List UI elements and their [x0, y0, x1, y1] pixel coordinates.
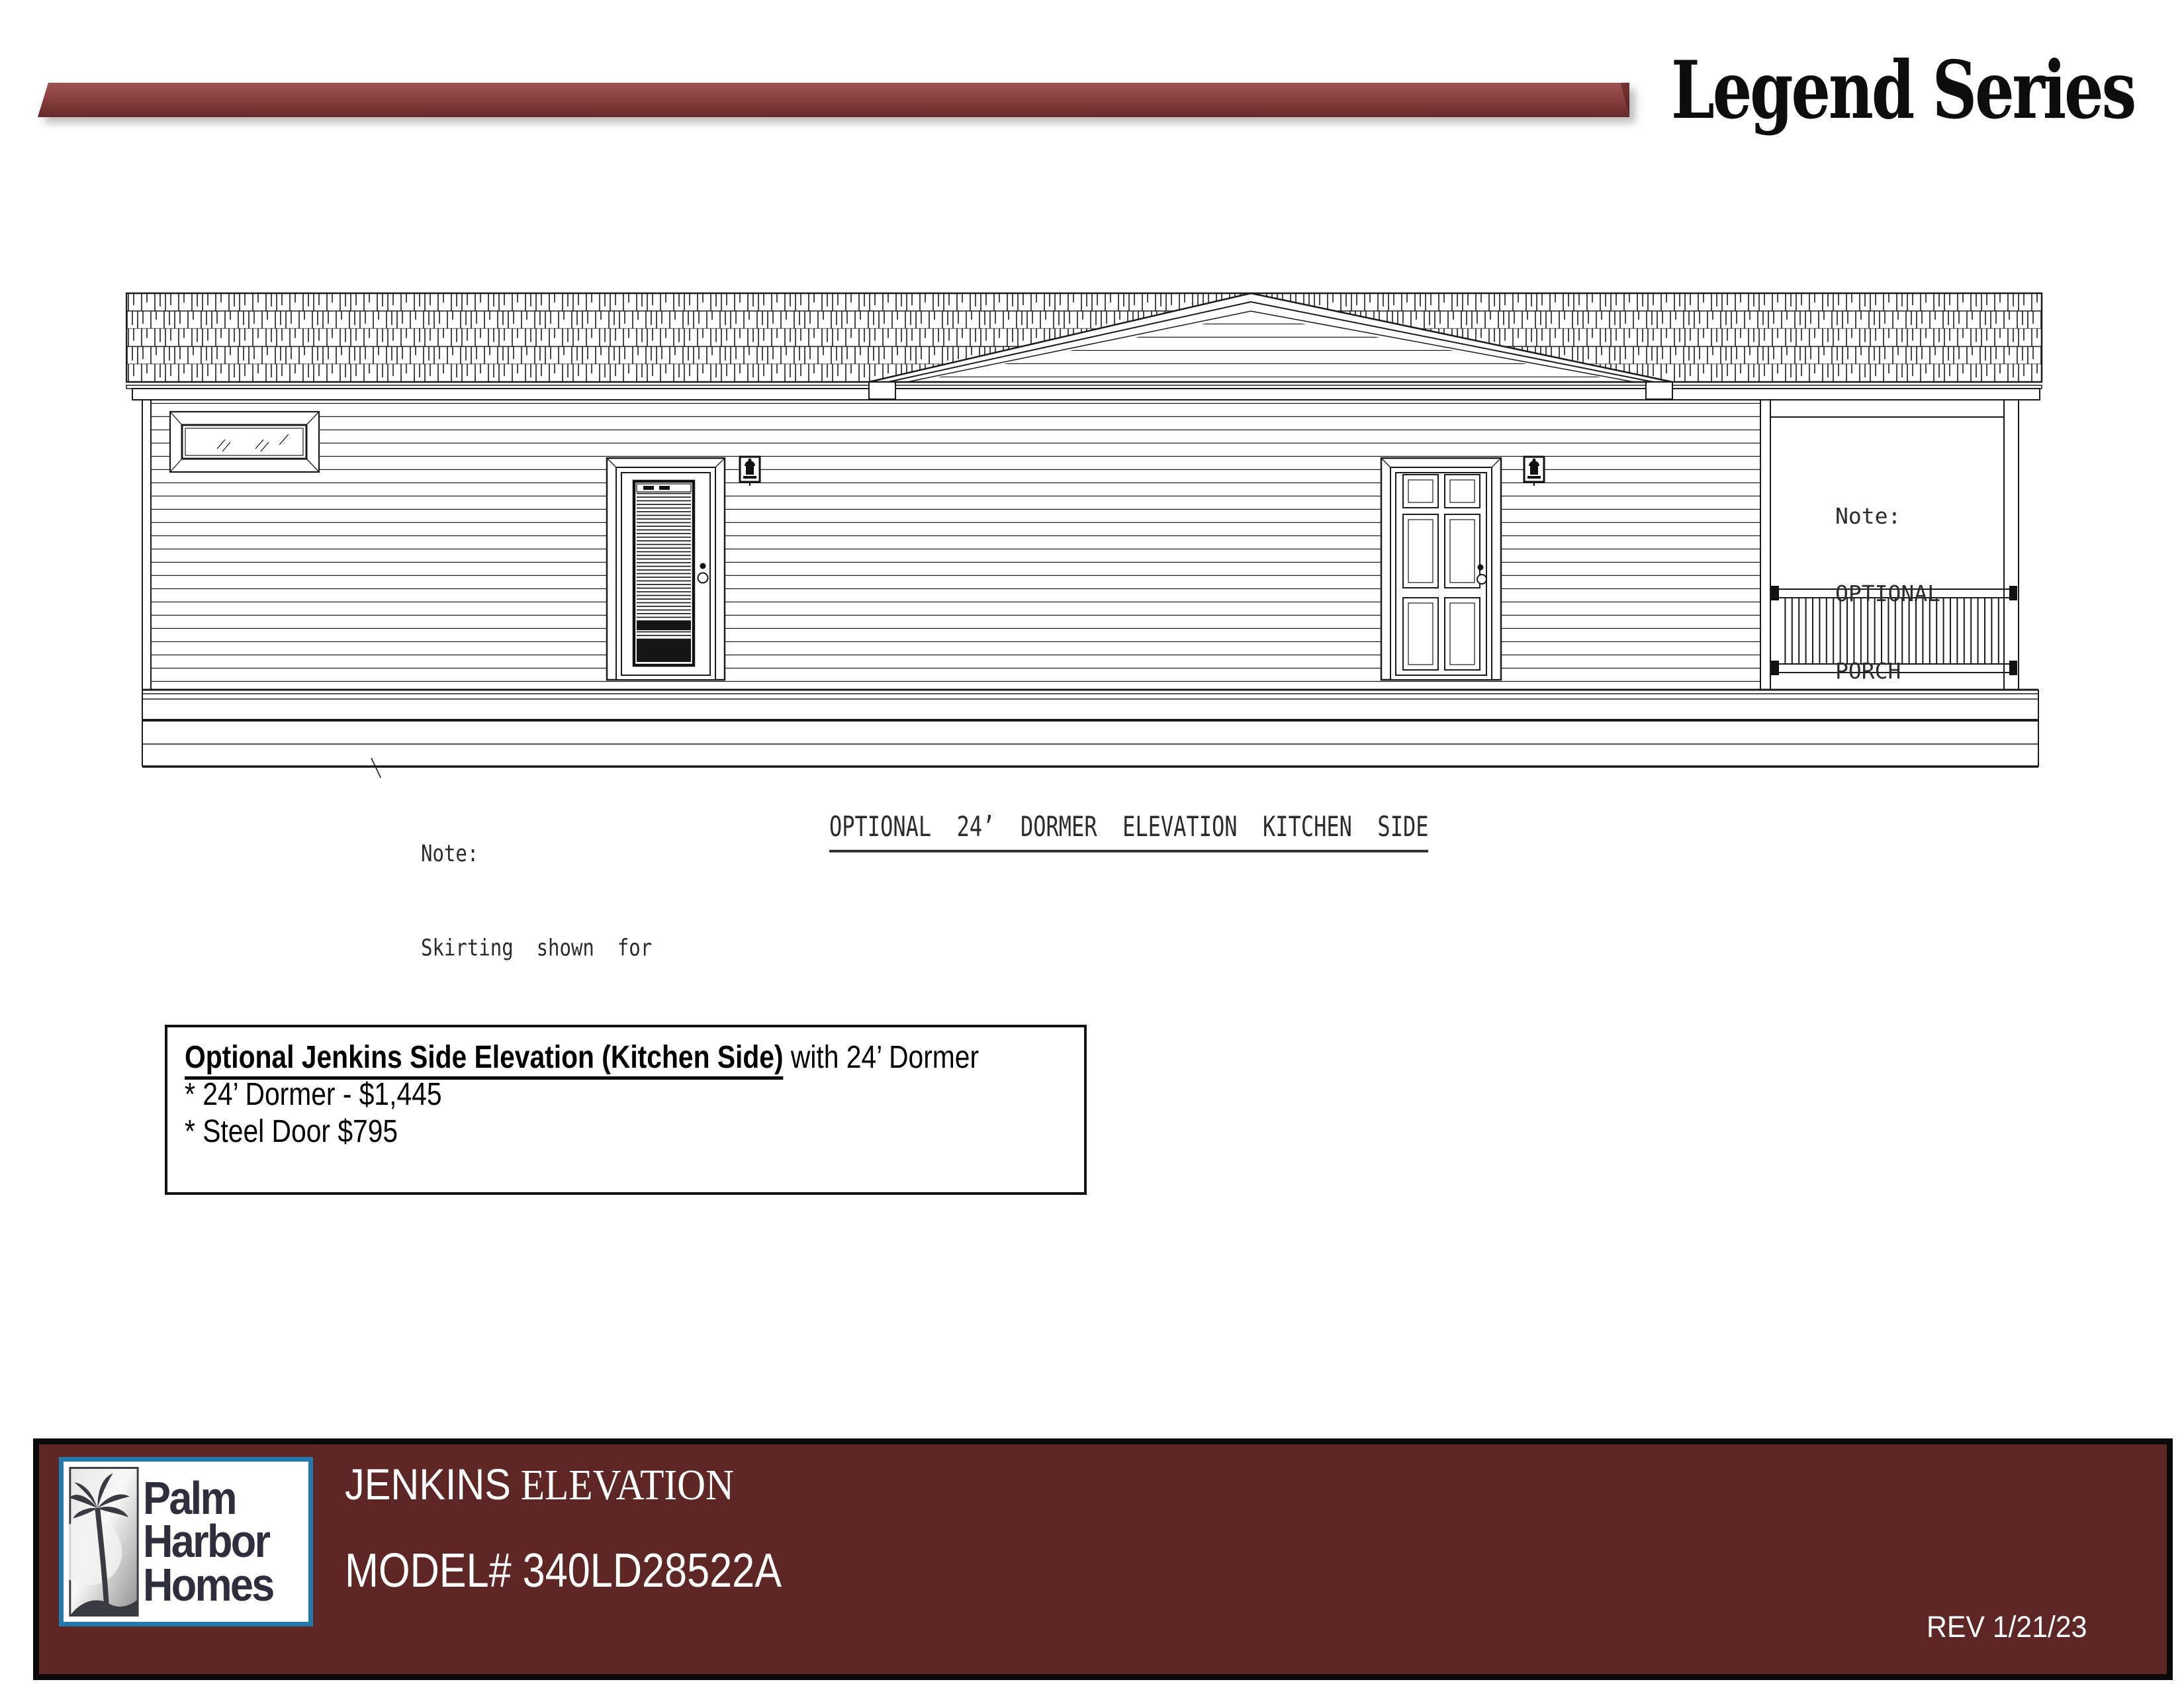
logo-word: Harbor: [143, 1520, 273, 1563]
price-item: * Steel Door $795: [185, 1113, 949, 1150]
skirting-note-line: Note:: [421, 837, 745, 869]
palm-tree-icon: [69, 1467, 139, 1617]
skirting-note-line: Skirting shown for: [421, 932, 745, 964]
porch-note-line: PORCH: [1835, 658, 1940, 684]
steel-door-with-blinds: [607, 458, 725, 680]
door-deadbolt: [698, 573, 708, 583]
logo-wordmark: Palm Harbor Homes: [143, 1477, 273, 1606]
six-panel-door: [1381, 458, 1501, 680]
wall-siding: [142, 400, 1770, 690]
elevation-title: JENKINS ELEVATION: [345, 1459, 734, 1511]
revision-date: REV 1/21/23: [1927, 1610, 2087, 1644]
porch-note-line: OPTIONAL: [1835, 581, 1940, 606]
price-box-title: Optional Jenkins Side Elevation (Kitchen…: [185, 1039, 949, 1076]
accent-bar-body: [38, 83, 1629, 117]
price-box-title-rest: with 24’ Dormer: [784, 1040, 979, 1075]
door-deadbolt: [1477, 575, 1486, 584]
price-item: * 24’ Dormer - $1,445: [185, 1076, 949, 1113]
porch-light-icon: [740, 457, 760, 486]
door-knob: [1478, 565, 1484, 571]
logo-word: Homes: [143, 1564, 273, 1607]
option-price-box: Optional Jenkins Side Elevation (Kitchen…: [165, 1025, 1087, 1195]
logo-word: Palm: [143, 1477, 273, 1520]
header-accent-bar: [38, 83, 1629, 117]
elevation-drawing: [126, 285, 2058, 778]
porch-note: Note: OPTIONAL PORCH: [1835, 451, 1940, 710]
series-title: Legend Series: [1671, 51, 2134, 130]
drawing-caption: OPTIONAL 24’ DORMER ELEVATION KITCHEN SI…: [829, 810, 1428, 853]
porch-light-icon: [1524, 457, 1544, 486]
kitchen-window: [170, 412, 319, 472]
palm-harbor-homes-logo: Palm Harbor Homes: [59, 1457, 313, 1626]
price-box-title-bold: Optional Jenkins Side Elevation (Kitchen…: [185, 1040, 784, 1080]
roof-fascia: [126, 385, 2042, 400]
skirting-leader-line: [371, 758, 416, 778]
porch-note-line: Note:: [1835, 503, 1940, 529]
skirting: [142, 690, 2038, 778]
footer-band: Palm Harbor Homes JENKINS ELEVATION MODE…: [33, 1438, 2173, 1680]
model-number: MODEL# 340LD28522A: [345, 1544, 782, 1598]
elevation-title-word: ELEVATION: [511, 1461, 734, 1509]
door-knob: [700, 563, 706, 569]
elevation-title-name: JENKINS: [345, 1460, 511, 1509]
page: { "header": { "series_title": "Legend Se…: [0, 0, 2184, 1688]
